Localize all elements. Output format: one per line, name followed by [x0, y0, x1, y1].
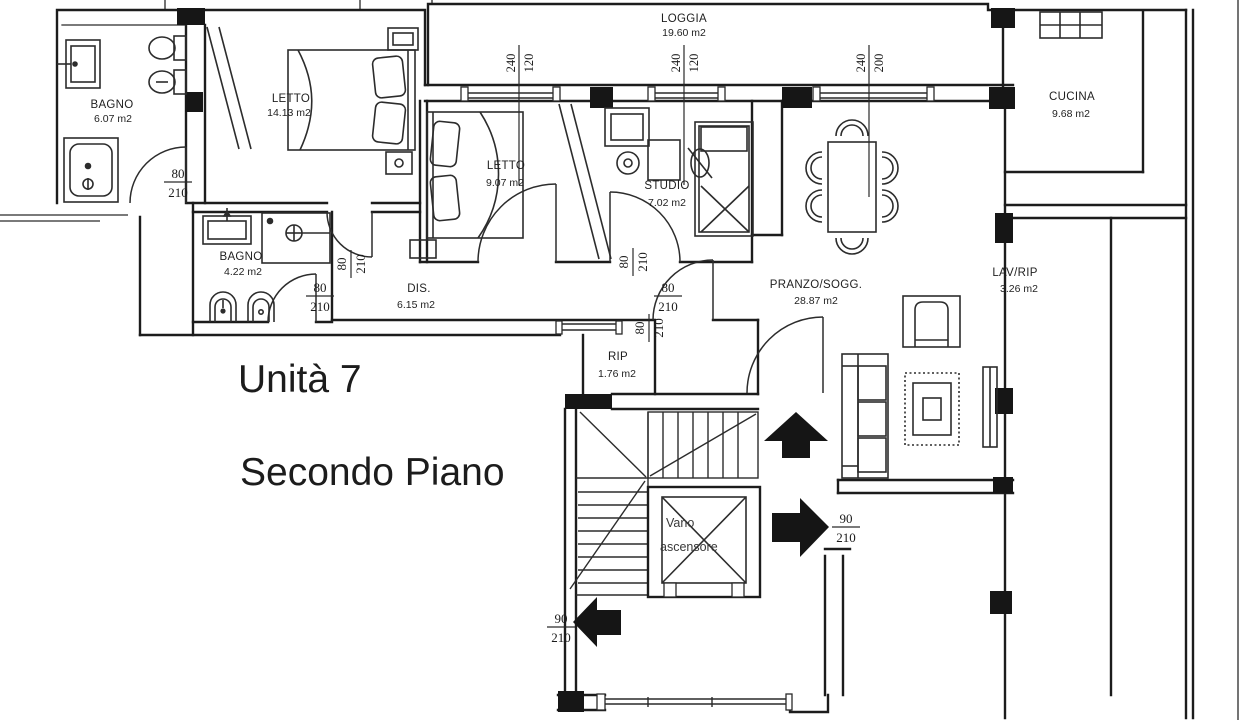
room-label-bagno-grande: BAGNO [90, 99, 133, 111]
door-dim: 80 210 [306, 280, 334, 314]
window-dim: 240 200 [854, 54, 886, 73]
chair-icon [806, 152, 822, 184]
room-area-cucina: 9.68 m2 [1052, 108, 1090, 120]
living-furniture [842, 296, 960, 478]
double-bed-icon [427, 112, 523, 238]
svg-text:210: 210 [635, 252, 650, 272]
door-dim: 80 210 [334, 250, 368, 278]
svg-text:120: 120 [687, 54, 701, 73]
arrow-up-icon [764, 412, 828, 458]
window-dim: 240 120 [504, 54, 536, 73]
nightstand-icon [386, 152, 412, 174]
kitchen-fixtures [1040, 12, 1102, 38]
rip-window [556, 321, 622, 334]
floor-subtitle: Secondo Piano [240, 451, 505, 494]
svg-text:80: 80 [662, 280, 675, 295]
elevator-label-line1: Vano [666, 516, 694, 530]
room-labels: LOGGIA 19.60 m2 BAGNO 6.07 m2 LETTO 14.1… [90, 13, 1094, 380]
svg-text:210: 210 [658, 299, 678, 314]
room-area-dis: 6.15 m2 [397, 299, 435, 311]
svg-text:210: 210 [353, 254, 368, 274]
room-label-lavrip: LAV/RIP [992, 267, 1037, 279]
room-label-letto-piccolo: LETTO [487, 160, 525, 172]
svg-text:80: 80 [172, 166, 185, 181]
svg-text:210: 210 [551, 630, 571, 645]
room-label-dis: DIS. [407, 283, 431, 295]
svg-text:90: 90 [840, 511, 853, 526]
room-label-loggia: LOGGIA [661, 13, 707, 25]
room-area-studio: 7.02 m2 [648, 197, 686, 209]
door-dim: 80 210 [164, 166, 192, 200]
landing-window [597, 694, 792, 710]
svg-text:210: 210 [651, 318, 666, 338]
studio-furniture [605, 108, 753, 236]
svg-text:80: 80 [632, 322, 647, 335]
room-area-letto-grande: 14.13 m2 [267, 107, 311, 119]
door-dim: 80 210 [654, 280, 682, 314]
chair-icon [806, 190, 822, 222]
room-area-rip: 1.76 m2 [598, 368, 636, 380]
bedroom1-furniture [207, 27, 418, 174]
stairs-upper-flight [580, 412, 758, 478]
window-dim: 240 120 [669, 54, 701, 73]
chair-icon [836, 120, 868, 136]
loggia-windows [461, 87, 934, 101]
svg-text:210: 210 [310, 299, 330, 314]
room-area-bagno-piccolo: 4.22 m2 [224, 266, 262, 278]
room-area-lavrip: 3.26 m2 [1000, 283, 1038, 295]
arrow-left-icon [573, 597, 621, 647]
door-dim: 80 210 [632, 314, 666, 342]
svg-text:240: 240 [504, 54, 518, 73]
room-area-letto-piccolo: 9.07 m2 [486, 177, 524, 189]
unit-title: Unità 7 [238, 358, 362, 401]
elevator-shaft: Vano ascensore [648, 487, 760, 597]
stairs-lower-flight [570, 412, 648, 595]
bench-icon [410, 240, 436, 258]
door-dim: 80 210 [616, 248, 650, 276]
chair-icon [882, 152, 898, 184]
svg-text:210: 210 [836, 530, 856, 545]
room-label-bagno-piccolo: BAGNO [219, 251, 262, 263]
stairwell: Vano ascensore [570, 412, 760, 597]
desk-icon [648, 140, 680, 180]
room-label-rip: RIP [608, 351, 628, 363]
arrow-right-icon [772, 498, 829, 557]
entry-door-dim: 90 210 [832, 511, 860, 545]
chair-icon [617, 152, 639, 174]
svg-text:80: 80 [616, 256, 631, 269]
svg-text:210: 210 [168, 185, 188, 200]
room-area-pranzo: 28.87 m2 [794, 295, 838, 307]
svg-text:200: 200 [872, 54, 886, 73]
svg-text:120: 120 [522, 54, 536, 73]
room-label-pranzo: PRANZO/SOGG. [770, 279, 862, 291]
room-area-loggia: 19.60 m2 [662, 27, 706, 39]
svg-text:240: 240 [854, 54, 868, 73]
room-label-studio: STUDIO [644, 180, 689, 192]
window-dimension-labels: 240 120 240 120 240 200 [504, 54, 886, 73]
svg-text:80: 80 [314, 280, 327, 295]
room-label-letto-grande: LETTO [272, 93, 310, 105]
svg-text:240: 240 [669, 54, 683, 73]
entry-door-dim: 90 210 [547, 611, 575, 645]
room-label-cucina: CUCINA [1049, 91, 1095, 103]
floor-plan: Vano ascensore LOGGIA 19.60 m2 BAGNO 6.0… [0, 0, 1240, 720]
dining-set [806, 120, 898, 254]
elevator-label-line2: ascensore [660, 540, 718, 554]
windows [461, 87, 997, 710]
svg-text:90: 90 [555, 611, 568, 626]
chair-icon [836, 238, 868, 254]
single-bed-icon [695, 122, 753, 236]
wardrobe-icon [559, 104, 599, 259]
sofa-icon [842, 354, 888, 478]
svg-text:80: 80 [334, 258, 349, 271]
room-area-bagno-grande: 6.07 m2 [94, 113, 132, 125]
chair-icon [882, 190, 898, 222]
